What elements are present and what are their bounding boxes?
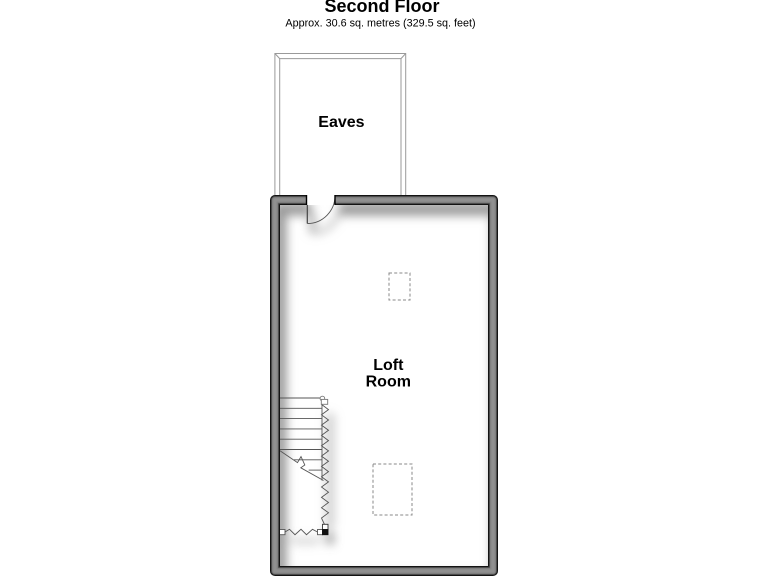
svg-text:Eaves: Eaves: [318, 114, 364, 131]
svg-text:Approx. 30.6 sq. metres (329.5: Approx. 30.6 sq. metres (329.5 sq. feet): [285, 17, 475, 29]
svg-text:Loft: Loft: [373, 357, 404, 374]
svg-text:Second Floor: Second Floor: [324, 0, 439, 16]
svg-text:Room: Room: [366, 373, 411, 390]
